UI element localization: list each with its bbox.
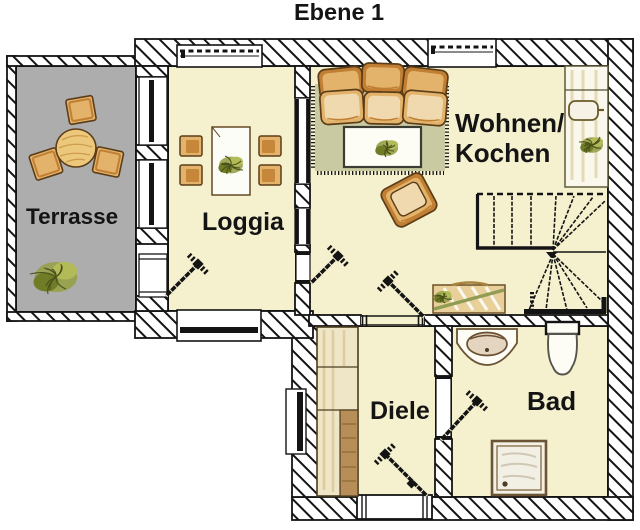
svg-text:Loggia: Loggia	[202, 208, 285, 236]
svg-text:Bad: Bad	[527, 386, 576, 416]
svg-text:Kochen: Kochen	[455, 138, 550, 168]
svg-text:Wohnen/: Wohnen/	[455, 108, 564, 138]
svg-text:Ebene 1: Ebene 1	[294, 0, 384, 25]
svg-text:Diele: Diele	[370, 397, 430, 425]
svg-text:Terrasse: Terrasse	[26, 204, 118, 229]
